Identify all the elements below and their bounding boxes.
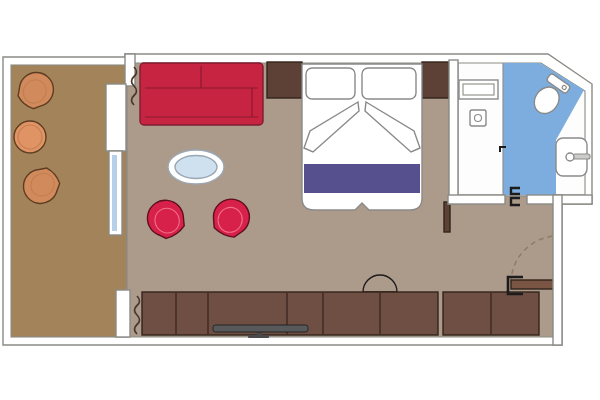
bed-runner <box>304 164 420 193</box>
pillow-left <box>306 68 355 99</box>
floor-plan-svg <box>0 0 600 400</box>
bathroom-left-wall <box>449 60 458 204</box>
shower-control-plate <box>470 110 486 126</box>
tv <box>213 325 308 332</box>
entrance-door <box>511 280 556 289</box>
sliding-door-glass <box>112 155 117 231</box>
pillow-right <box>362 68 416 99</box>
floor-plan <box>0 0 600 400</box>
nightstand-right <box>422 62 449 98</box>
shower-control <box>470 110 486 126</box>
nightstand-left <box>267 62 302 98</box>
washbasin-drain <box>566 153 574 161</box>
balcony-table <box>14 121 46 153</box>
vanity-counter <box>459 80 498 99</box>
bathroom-bottom-wall-left <box>448 195 505 204</box>
washbasin-faucet <box>573 154 590 159</box>
wall-stub <box>444 202 450 232</box>
sliding-door-fixed-pane <box>106 84 126 151</box>
room-left-wall <box>125 54 135 86</box>
vanity-outer <box>459 80 498 99</box>
divider-lower-wall <box>116 290 130 337</box>
washbasin <box>556 138 590 176</box>
corridor-right-wall <box>553 195 562 345</box>
oval-table-top <box>175 156 217 179</box>
sofa <box>140 63 263 125</box>
